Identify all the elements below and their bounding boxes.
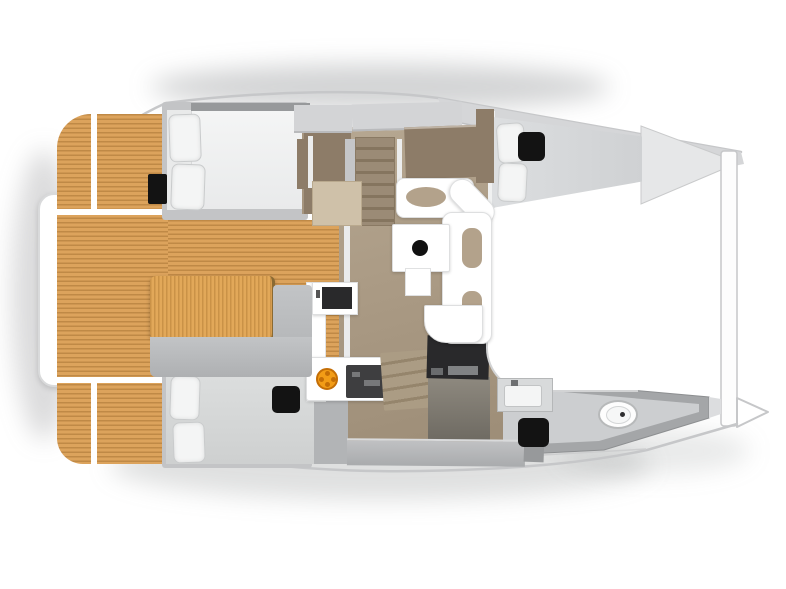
toilet-bowl	[606, 406, 631, 424]
pillow	[172, 421, 205, 463]
pillow	[169, 375, 201, 420]
burner	[325, 382, 330, 387]
table-leg	[405, 268, 431, 296]
burner	[325, 371, 330, 376]
berth-shelf	[476, 109, 494, 183]
island-faucet	[316, 290, 320, 298]
deck-hatch	[148, 174, 167, 204]
pillow	[170, 163, 206, 210]
fruit-bowl	[412, 240, 428, 256]
forward-crossbeam	[721, 151, 737, 426]
basin-faucet	[511, 380, 518, 386]
sofa-cushion	[406, 187, 446, 207]
worktop-sink	[448, 366, 478, 375]
deck-step-line	[57, 377, 171, 383]
shower-hatch	[518, 418, 549, 447]
bow-interior-top	[641, 126, 721, 204]
pillow	[168, 113, 202, 162]
sofa-cushion	[462, 228, 482, 268]
pillow	[497, 162, 528, 202]
deck-step-line	[91, 114, 97, 211]
deck-hatch	[272, 386, 300, 413]
aft-deck-band	[347, 438, 525, 467]
island-screen	[322, 287, 352, 309]
chart-desk	[312, 181, 362, 226]
deck-step-line	[91, 381, 97, 465]
bow-tip	[737, 398, 768, 427]
dinette-sofa-bottom	[424, 305, 483, 343]
deck-step-line	[57, 209, 171, 215]
bow-interior-bottom	[709, 397, 721, 418]
cockpit-table	[150, 276, 275, 339]
storage-cabinet	[404, 125, 484, 180]
washbasin	[504, 385, 542, 407]
double-bed-aft-top	[191, 111, 310, 209]
coachroof	[486, 195, 638, 392]
worktop-control	[431, 368, 443, 375]
gas-stove	[316, 368, 338, 390]
deck-hatch	[518, 132, 545, 161]
burner	[331, 377, 336, 382]
range-detail	[352, 372, 360, 377]
range-detail	[364, 380, 380, 386]
overhead-lockers	[294, 105, 352, 133]
companionway-shadow	[428, 377, 490, 441]
burner	[319, 377, 324, 382]
catamaran-floorplan	[0, 0, 786, 589]
toilet-flush	[620, 412, 625, 417]
l-shaped-bench-bottom	[150, 337, 312, 377]
